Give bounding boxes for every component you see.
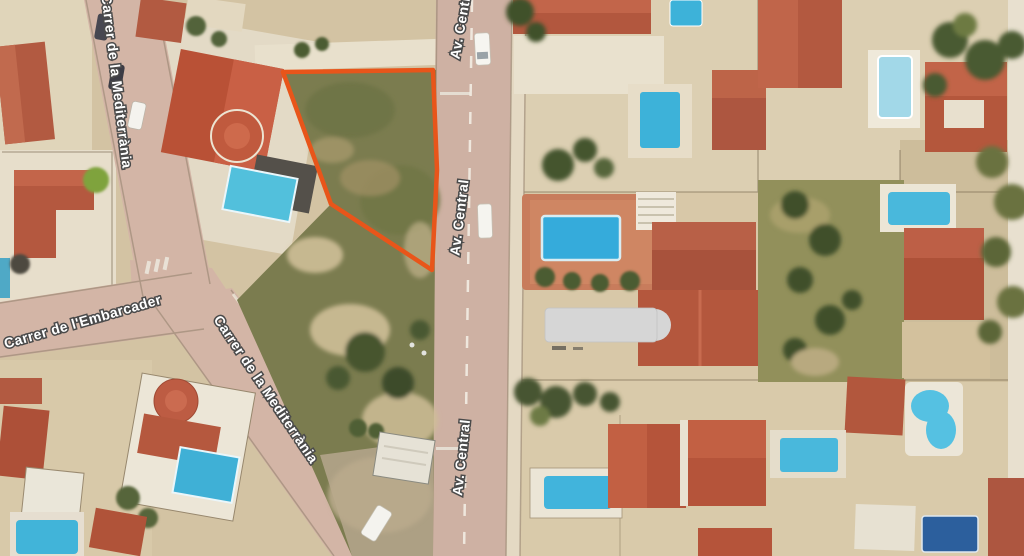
house-roof bbox=[14, 170, 94, 186]
swimming-pool bbox=[926, 411, 956, 449]
road-av-central bbox=[430, 0, 512, 556]
swimming-pool bbox=[878, 56, 912, 118]
windshield bbox=[477, 52, 488, 60]
house-wall bbox=[680, 420, 688, 506]
house-roof bbox=[854, 504, 916, 551]
turret-roof bbox=[224, 123, 250, 149]
swimming-pool bbox=[670, 0, 702, 26]
swimming-pool bbox=[780, 438, 838, 472]
house-roof bbox=[698, 528, 772, 556]
tree bbox=[294, 42, 310, 58]
house-roof bbox=[845, 377, 906, 436]
van bbox=[474, 33, 491, 66]
house-roof bbox=[758, 0, 798, 88]
swimming-pool bbox=[542, 216, 620, 260]
swimming-pool bbox=[888, 192, 950, 225]
tree bbox=[349, 419, 367, 437]
swimming-pool bbox=[922, 516, 978, 552]
house-roof bbox=[608, 424, 647, 508]
road-marking bbox=[440, 92, 470, 95]
tree bbox=[116, 486, 140, 510]
car bbox=[477, 204, 492, 238]
swimming-pool bbox=[0, 258, 10, 298]
swimming-pool bbox=[544, 476, 612, 509]
terrace bbox=[902, 322, 990, 378]
house-roof bbox=[652, 222, 756, 250]
tree bbox=[10, 254, 30, 274]
house-roof bbox=[988, 478, 1024, 556]
house-roof bbox=[135, 0, 186, 43]
tree bbox=[83, 167, 109, 193]
tree bbox=[315, 37, 329, 51]
swimming-pool bbox=[16, 520, 78, 554]
satellite-map: Carrer de la Mediterrània Carrer de l'Em… bbox=[0, 0, 1024, 556]
house-roof bbox=[904, 228, 984, 258]
swimming-pool bbox=[172, 447, 239, 503]
turret-roof bbox=[165, 390, 187, 412]
house-roof bbox=[688, 420, 766, 458]
tree bbox=[186, 16, 206, 36]
house-roof bbox=[0, 378, 42, 404]
terrace bbox=[944, 100, 984, 128]
tree bbox=[211, 31, 227, 47]
house-roof bbox=[712, 70, 766, 98]
swimming-pool bbox=[640, 92, 680, 148]
